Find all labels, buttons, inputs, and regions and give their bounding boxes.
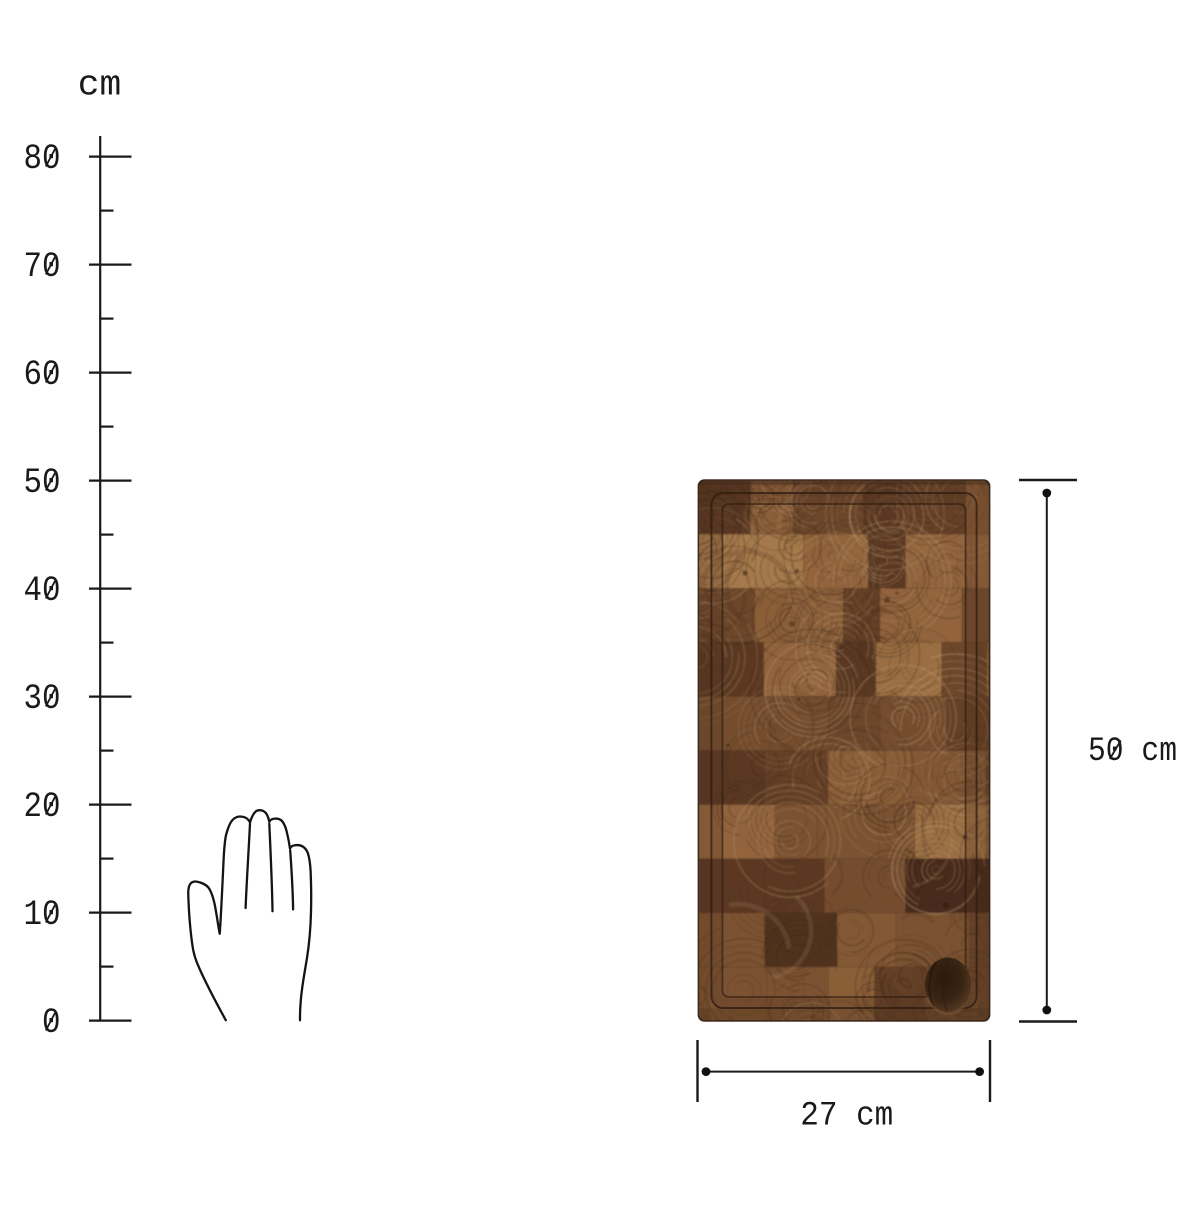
svg-text:30: 30 [24, 679, 61, 719]
svg-text:80: 80 [24, 139, 61, 179]
svg-text:27 cm: 27 cm [800, 1098, 893, 1136]
svg-text:70: 70 [24, 247, 61, 287]
svg-text:0: 0 [42, 1003, 61, 1043]
svg-text:10: 10 [24, 895, 61, 935]
svg-text:cm: cm [78, 65, 122, 106]
svg-text:20: 20 [24, 787, 61, 827]
svg-text:60: 60 [24, 355, 61, 395]
svg-text:50 cm: 50 cm [1088, 733, 1177, 771]
svg-text:50: 50 [24, 463, 61, 503]
svg-text:40: 40 [24, 571, 61, 611]
